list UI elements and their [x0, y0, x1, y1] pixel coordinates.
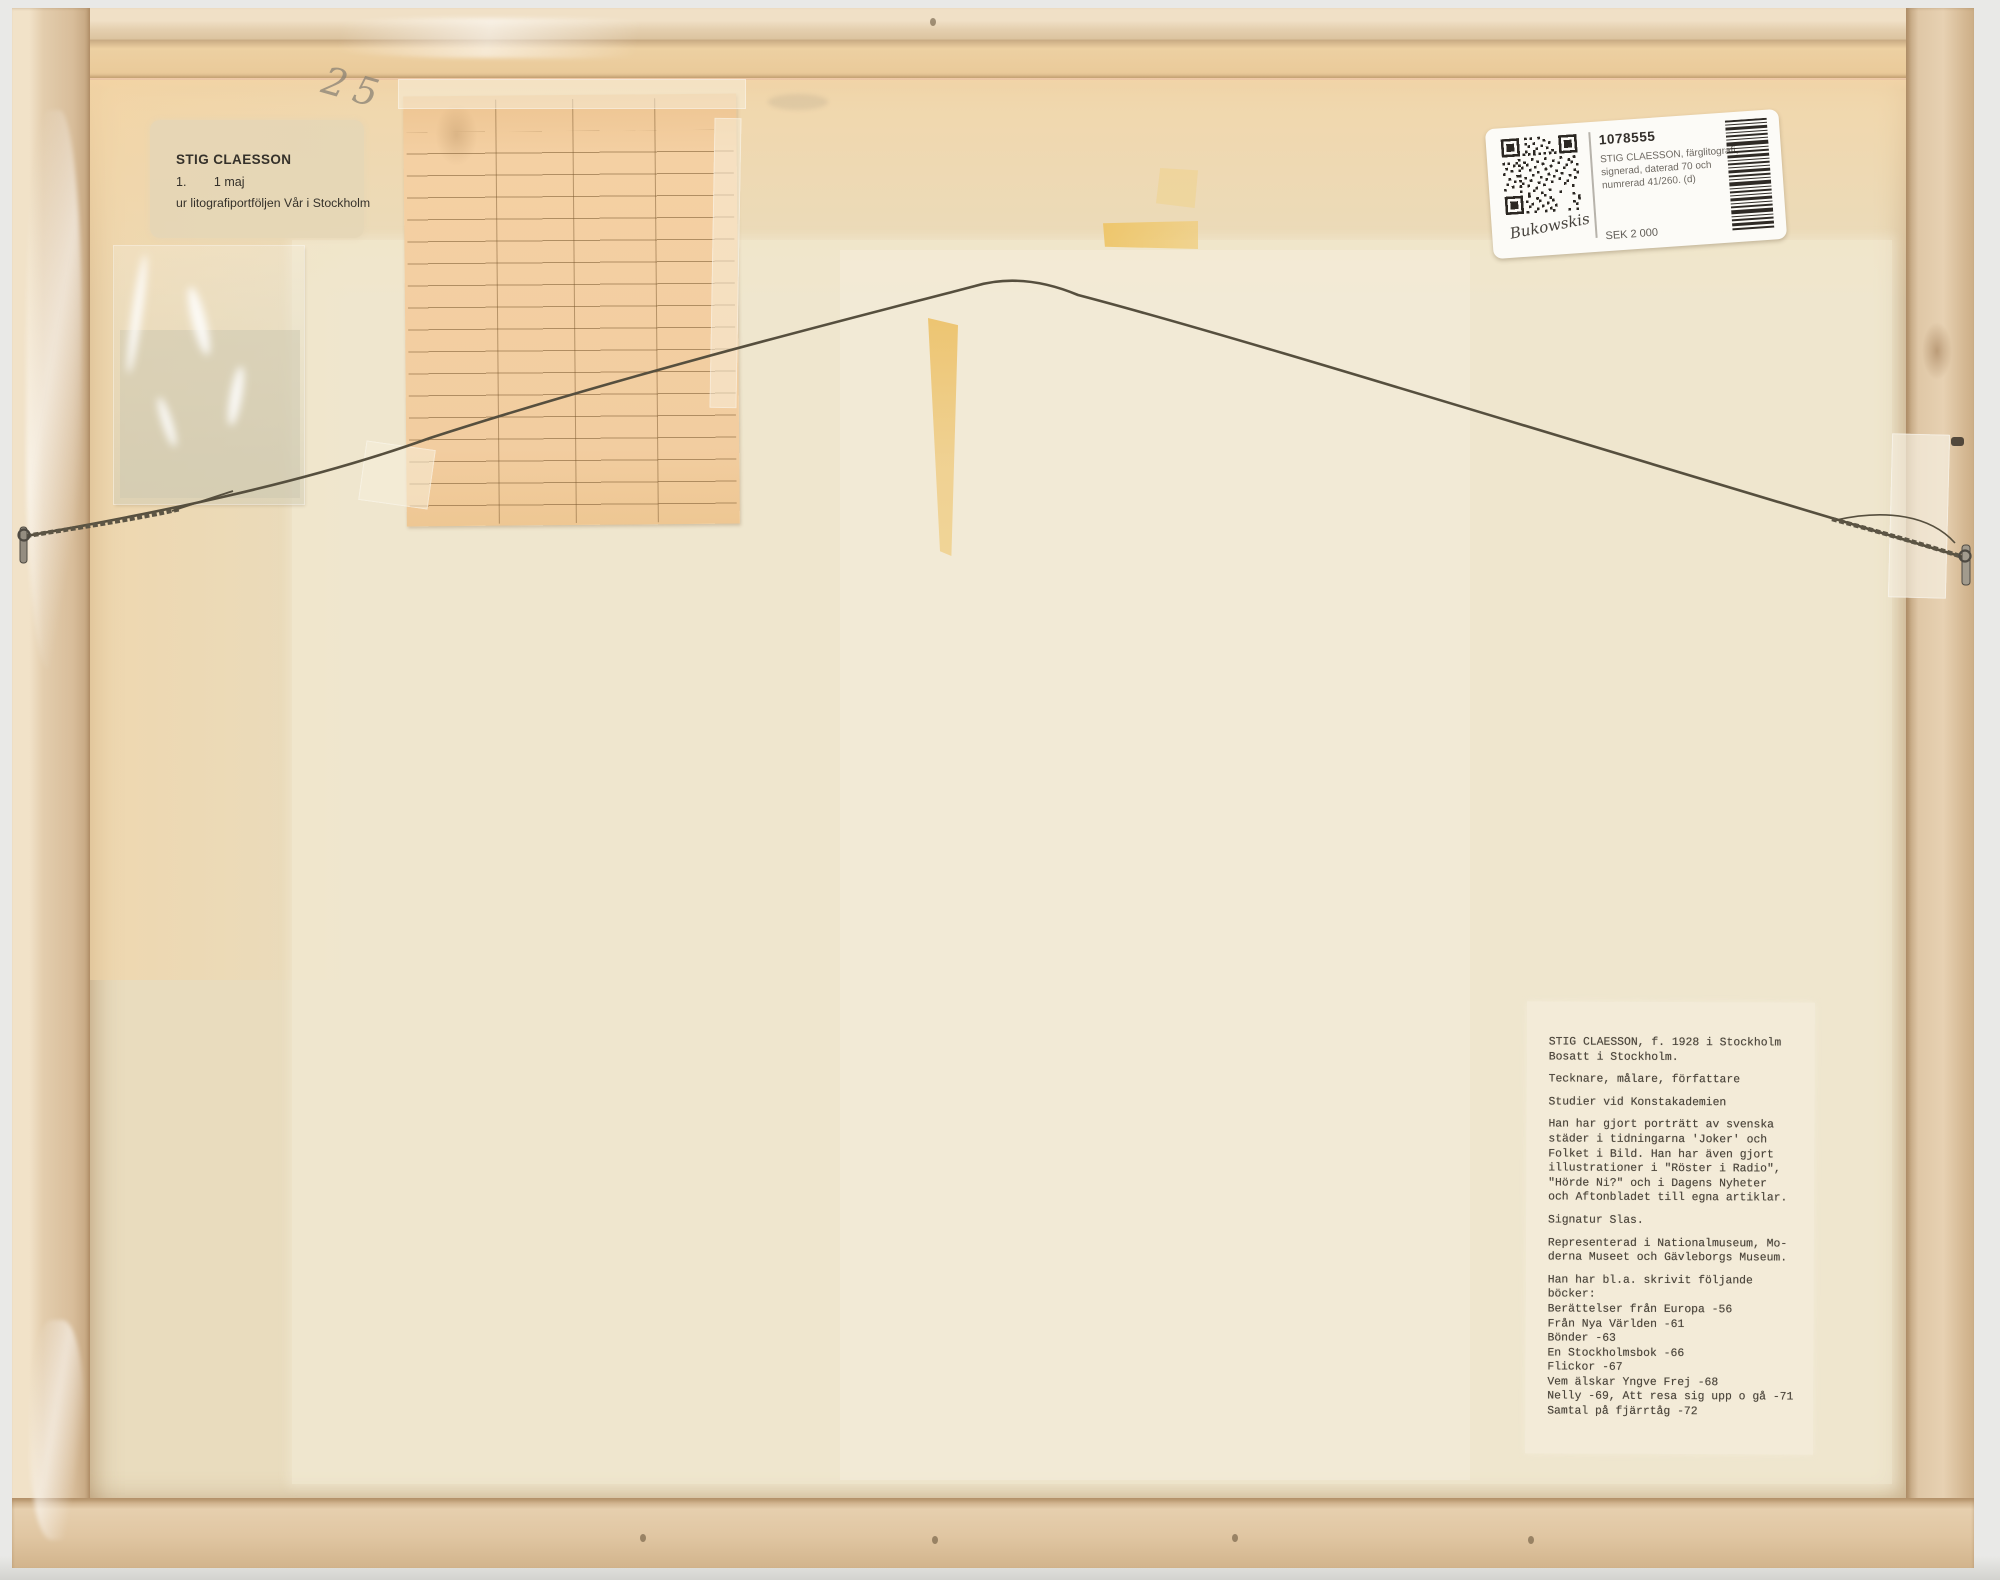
- screw-hole: [640, 1534, 646, 1542]
- bio-line: Folket i Bild. Han har även gjort: [1548, 1147, 1814, 1163]
- screw-hole: [932, 1536, 938, 1544]
- yellowed-tape-remnant: [1156, 168, 1198, 208]
- bio-line: Berättelser från Europa -56: [1548, 1302, 1814, 1318]
- bio-paragraph: Studier vid Konstakademien: [1549, 1095, 1815, 1111]
- bio-line: Signatur Slas.: [1548, 1213, 1814, 1229]
- faint-stamp-smudge: [768, 94, 828, 110]
- wood-knot: [1922, 322, 1952, 380]
- masking-tape-right: [709, 118, 741, 408]
- qr-code-icon: [1501, 134, 1582, 215]
- crinkled-tape-left-lower: [30, 1320, 84, 1540]
- bio-paragraph: Signatur Slas.: [1548, 1213, 1814, 1229]
- estimate-price: SEK 2 000: [1605, 227, 1658, 243]
- grid-paper-rows: [406, 130, 736, 525]
- ruled-grid-paper: [403, 94, 740, 527]
- bio-line: derna Museet och Gävleborgs Museum.: [1548, 1251, 1814, 1267]
- bio-line: illustrationer i "Röster i Radio",: [1548, 1162, 1814, 1178]
- bio-line: städer i tidningarna 'Joker' och: [1548, 1132, 1814, 1148]
- bio-line: Bönder -63: [1547, 1332, 1813, 1348]
- lot-number: 1078555: [1598, 129, 1656, 148]
- masking-tape-bottom-left: [358, 440, 436, 509]
- bio-paragraph: Representerad i Nationalmuseum, Mo- dern…: [1548, 1236, 1814, 1266]
- barcode-icon: [1725, 118, 1775, 233]
- auction-label: Bukowskis 1078555 STIG CLAESSON, färglit…: [1485, 109, 1787, 259]
- bio-line: Representerad i Nationalmuseum, Mo-: [1548, 1236, 1814, 1252]
- sleeve-contents: [120, 330, 300, 498]
- bio-line: Tecknare, målare, författare: [1549, 1073, 1815, 1089]
- frame-bar-right: [1906, 8, 1974, 1568]
- crinkled-tape-left: [26, 110, 82, 670]
- screw-hole: [930, 18, 936, 26]
- biography-label: STIG CLAESSON, f. 1928 i Stockholm Bosat…: [1525, 1001, 1815, 1454]
- hanger-tape: [1888, 433, 1950, 598]
- framed-artwork-back-photo: STIG CLAESSON 1. 1 maj ur litografiportf…: [0, 0, 2000, 1580]
- plate-title: 1 maj: [214, 175, 245, 189]
- crinkled-tape-top: [300, 17, 720, 59]
- screw-hole: [1232, 1534, 1238, 1542]
- plate-number: 1.: [176, 175, 186, 189]
- bio-line: Nelly -69, Att resa sig upp o gå -71: [1547, 1390, 1813, 1406]
- bio-line: En Stockholmsbok -66: [1547, 1346, 1813, 1362]
- portfolio-artist-name: STIG CLAESSON: [176, 152, 291, 167]
- bio-paragraph: STIG CLAESSON, f. 1928 i Stockholm Bosat…: [1549, 1035, 1815, 1065]
- screw-hole: [1528, 1536, 1534, 1544]
- bio-line: Studier vid Konstakademien: [1549, 1095, 1815, 1111]
- bio-paragraph: Tecknare, målare, författare: [1549, 1073, 1815, 1089]
- keyhole-slot: [1951, 437, 1964, 446]
- lot-description: STIG CLAESSON, färglitografi, signerad, …: [1600, 145, 1741, 193]
- bio-line: STIG CLAESSON, f. 1928 i Stockholm: [1549, 1035, 1815, 1051]
- bio-line: Bosatt i Stockholm.: [1549, 1050, 1815, 1066]
- bio-line: "Hörde Ni?" och i Dagens Nyheter: [1548, 1176, 1814, 1192]
- bio-line: Han har gjort porträtt av svenska: [1548, 1118, 1814, 1134]
- bio-line: och Aftonbladet till egna artiklar.: [1548, 1191, 1814, 1207]
- portfolio-label: STIG CLAESSON 1. 1 maj ur litografiportf…: [150, 120, 364, 238]
- yellowed-tape-horizontal: [1103, 221, 1198, 249]
- frame-bar-bottom: [12, 1498, 1974, 1568]
- bio-line: Han har bl.a. skrivit följande: [1548, 1273, 1814, 1289]
- bio-line: Från Nya Världen -61: [1548, 1317, 1814, 1333]
- bio-line: Samtal på fjärrtåg -72: [1547, 1405, 1813, 1421]
- plastic-sleeve: [114, 246, 304, 504]
- masking-tape-top: [398, 79, 746, 109]
- bio-paragraph: Han har bl.a. skrivit följande böcker: B…: [1547, 1273, 1814, 1420]
- portfolio-series: ur litografiportföljen Vår i Stockholm: [176, 196, 370, 210]
- thumb-smudge: [435, 104, 478, 166]
- bio-line: böcker:: [1548, 1288, 1814, 1304]
- bio-paragraph: Han har gjort porträtt av svenska städer…: [1548, 1118, 1814, 1207]
- portfolio-plate-line: 1. 1 maj: [176, 175, 245, 189]
- bio-line: Vem älskar Yngve Frej -68: [1547, 1375, 1813, 1391]
- bio-line: Flickor -67: [1547, 1361, 1813, 1377]
